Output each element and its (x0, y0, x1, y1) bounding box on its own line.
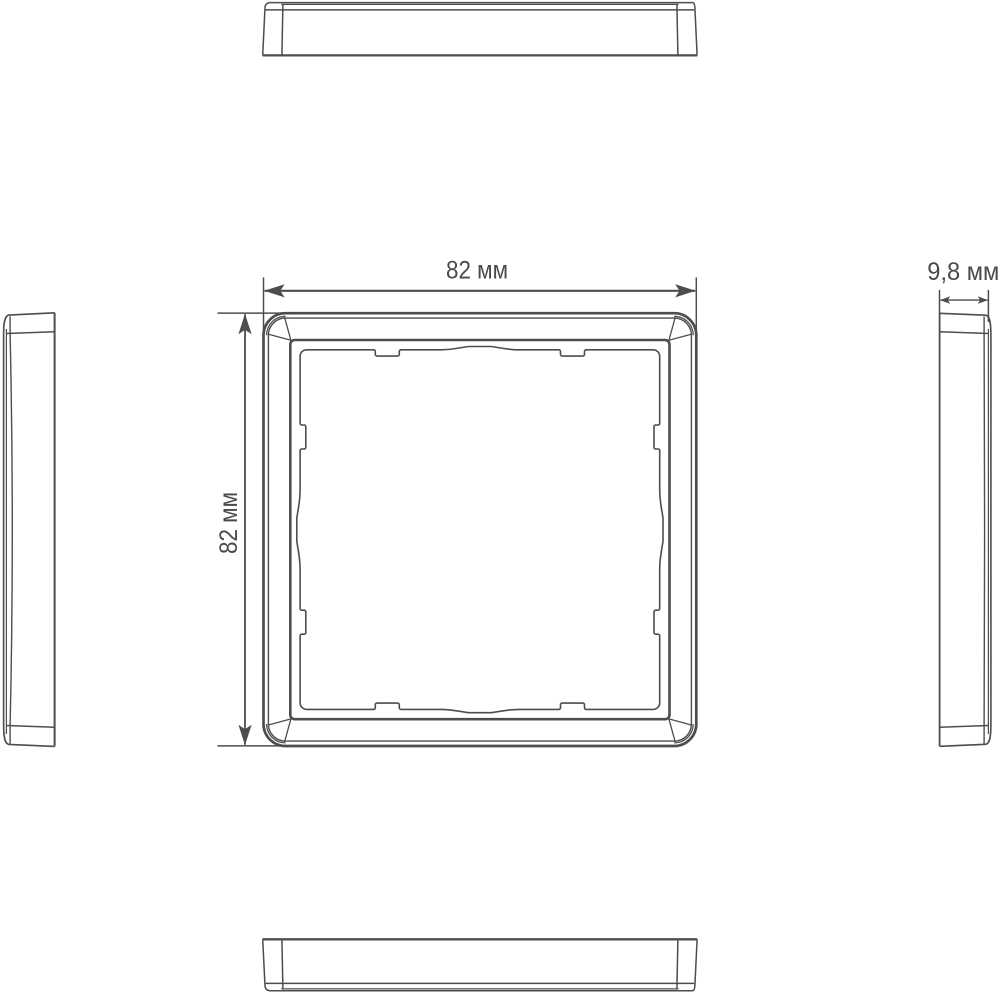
svg-text:82 мм: 82 мм (446, 257, 508, 285)
svg-text:82 мм: 82 мм (215, 492, 243, 554)
svg-text:9,8 мм: 9,8 мм (927, 258, 999, 286)
